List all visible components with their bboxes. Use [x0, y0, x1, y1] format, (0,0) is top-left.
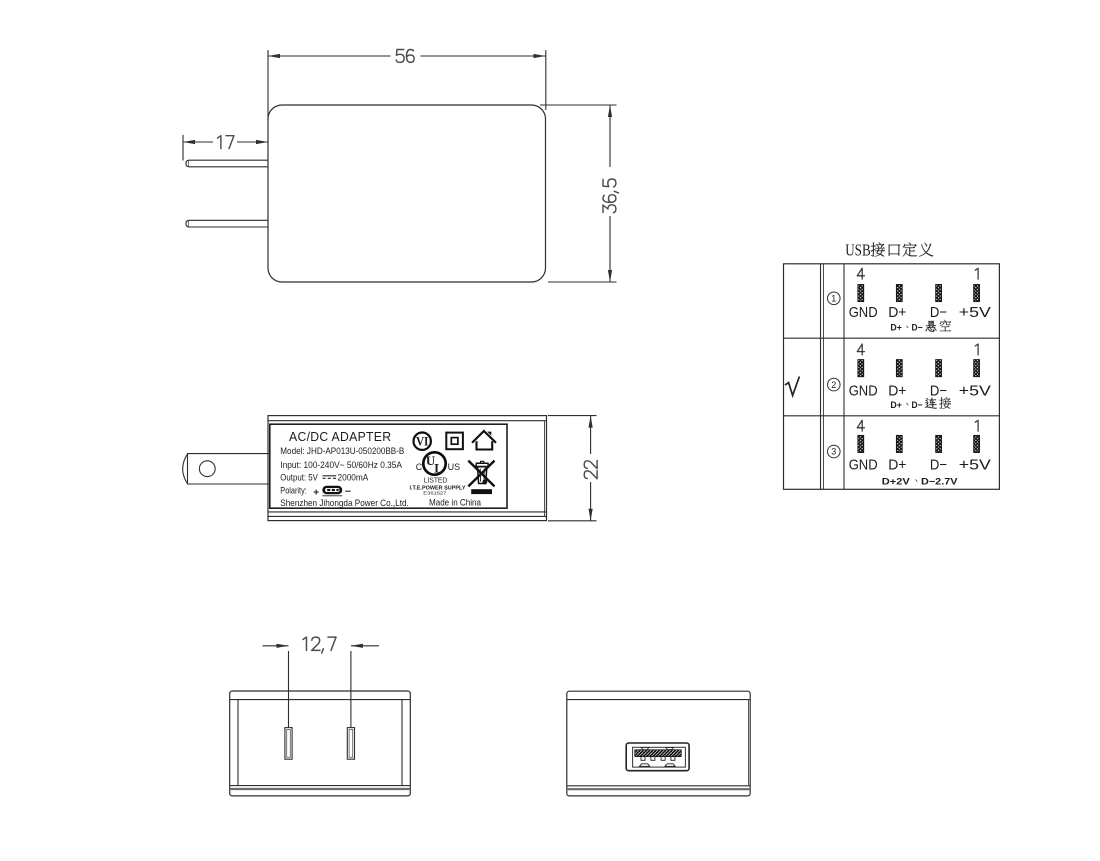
svg-text:+5V: +5V: [959, 383, 991, 400]
svg-text:Shenzhen Jihongda Power Co.,Lt: Shenzhen Jihongda Power Co.,Ltd.: [280, 498, 409, 508]
svg-text:D−: D−: [930, 383, 947, 400]
svg-text:C: C: [416, 462, 423, 472]
svg-text:D−: D−: [912, 400, 923, 411]
svg-text:2000mA: 2000mA: [338, 472, 369, 482]
svg-text:D+: D+: [888, 457, 906, 474]
svg-text:E361527: E361527: [423, 491, 446, 497]
svg-text:LISTED: LISTED: [424, 477, 448, 484]
svg-text:D−2.7V: D−2.7V: [921, 476, 958, 487]
svg-text:1: 1: [831, 294, 836, 304]
svg-text:D−: D−: [930, 457, 947, 474]
svg-text:D+: D+: [890, 400, 902, 411]
svg-text:AC/DC ADAPTER: AC/DC ADAPTER: [289, 430, 391, 444]
svg-text:D−: D−: [930, 304, 947, 321]
svg-text:I.T.E.POWER SUPPLY: I.T.E.POWER SUPPLY: [410, 485, 466, 491]
svg-text:USB: USB: [845, 240, 871, 259]
svg-text:US: US: [448, 462, 461, 472]
svg-text:3: 3: [831, 447, 836, 457]
svg-text:+5V: +5V: [959, 457, 991, 474]
svg-text:D+: D+: [890, 323, 902, 334]
svg-text:GND: GND: [849, 304, 878, 321]
svg-text:GND: GND: [849, 383, 878, 400]
svg-text:Polarity:: Polarity:: [280, 485, 307, 495]
svg-text:2: 2: [831, 380, 836, 390]
svg-text:D+2V: D+2V: [882, 476, 911, 487]
svg-text:L: L: [434, 461, 443, 476]
svg-text:+5V: +5V: [959, 304, 991, 321]
svg-text:D+: D+: [888, 383, 906, 400]
svg-text:GND: GND: [849, 457, 878, 474]
svg-text:Model: JHD-AP013U-050200BB-B: Model: JHD-AP013U-050200BB-B: [280, 446, 404, 456]
svg-text:D+: D+: [888, 304, 906, 321]
svg-text:Input: 100-240V~ 50/60Hz 0.3: Input: 100-240V~ 50/60Hz 0.35A: [280, 460, 402, 470]
svg-text:Made in China: Made in China: [429, 498, 482, 509]
svg-text:Output: 5V: Output: 5V: [280, 472, 318, 482]
svg-text:D−: D−: [912, 323, 923, 334]
svg-text:VI: VI: [416, 434, 429, 448]
